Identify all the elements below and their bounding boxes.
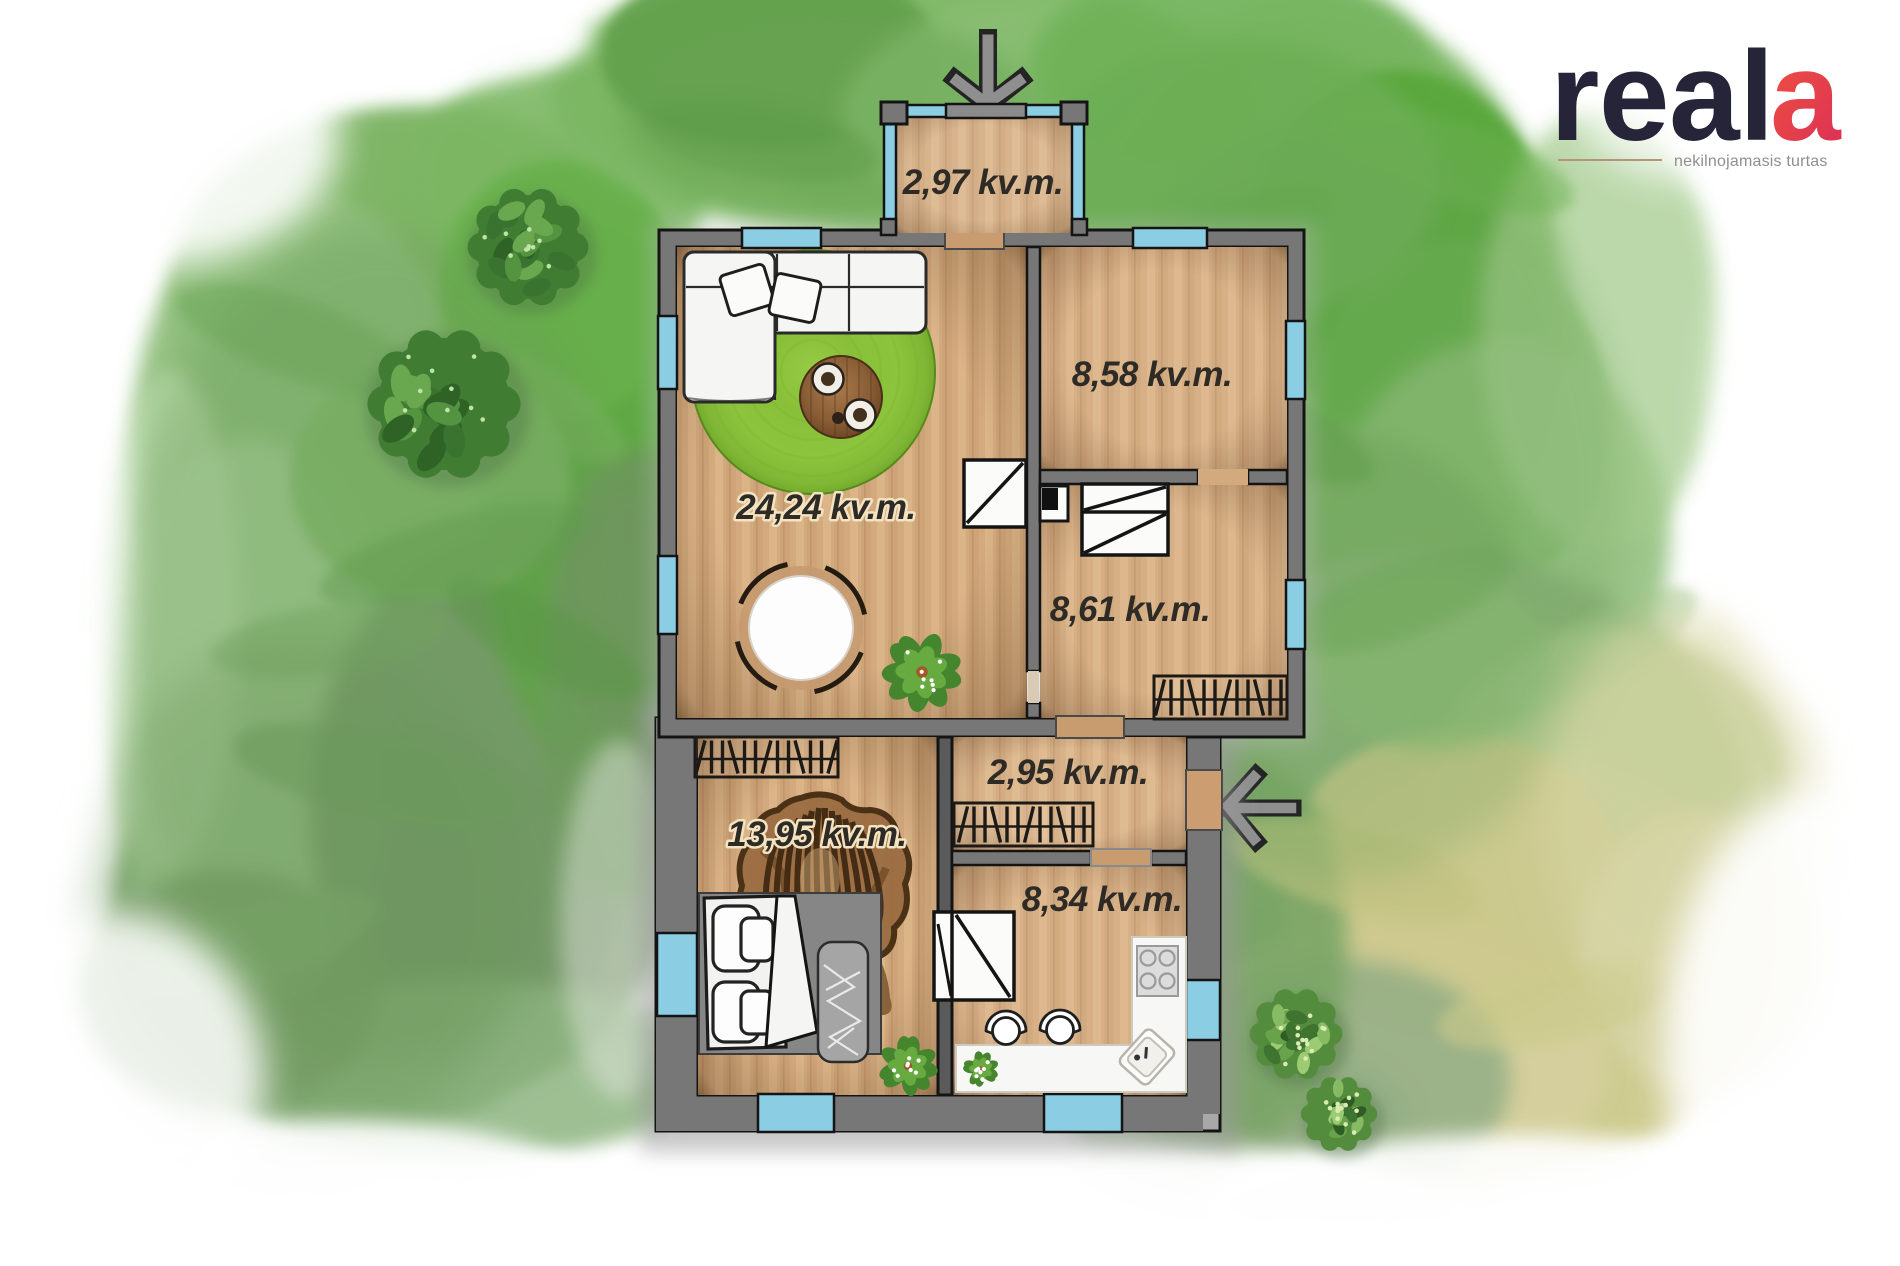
svg-text:real: real bbox=[1550, 25, 1774, 167]
svg-text:8,34 kv.m.: 8,34 kv.m. bbox=[1022, 880, 1182, 919]
svg-text:2,97 kv.m.: 2,97 kv.m. bbox=[902, 163, 1063, 202]
svg-text:nekilnojamasis turtas: nekilnojamasis turtas bbox=[1674, 153, 1828, 170]
svg-text:24,24 kv.m.: 24,24 kv.m. bbox=[735, 488, 915, 527]
svg-text:2,95 kv.m.: 2,95 kv.m. bbox=[987, 753, 1148, 792]
svg-text:8,61 kv.m.: 8,61 kv.m. bbox=[1050, 590, 1210, 629]
svg-text:a: a bbox=[1770, 25, 1842, 167]
svg-text:13,95 kv.m.: 13,95 kv.m. bbox=[727, 815, 906, 854]
svg-text:8,58 kv.m.: 8,58 kv.m. bbox=[1072, 355, 1232, 394]
